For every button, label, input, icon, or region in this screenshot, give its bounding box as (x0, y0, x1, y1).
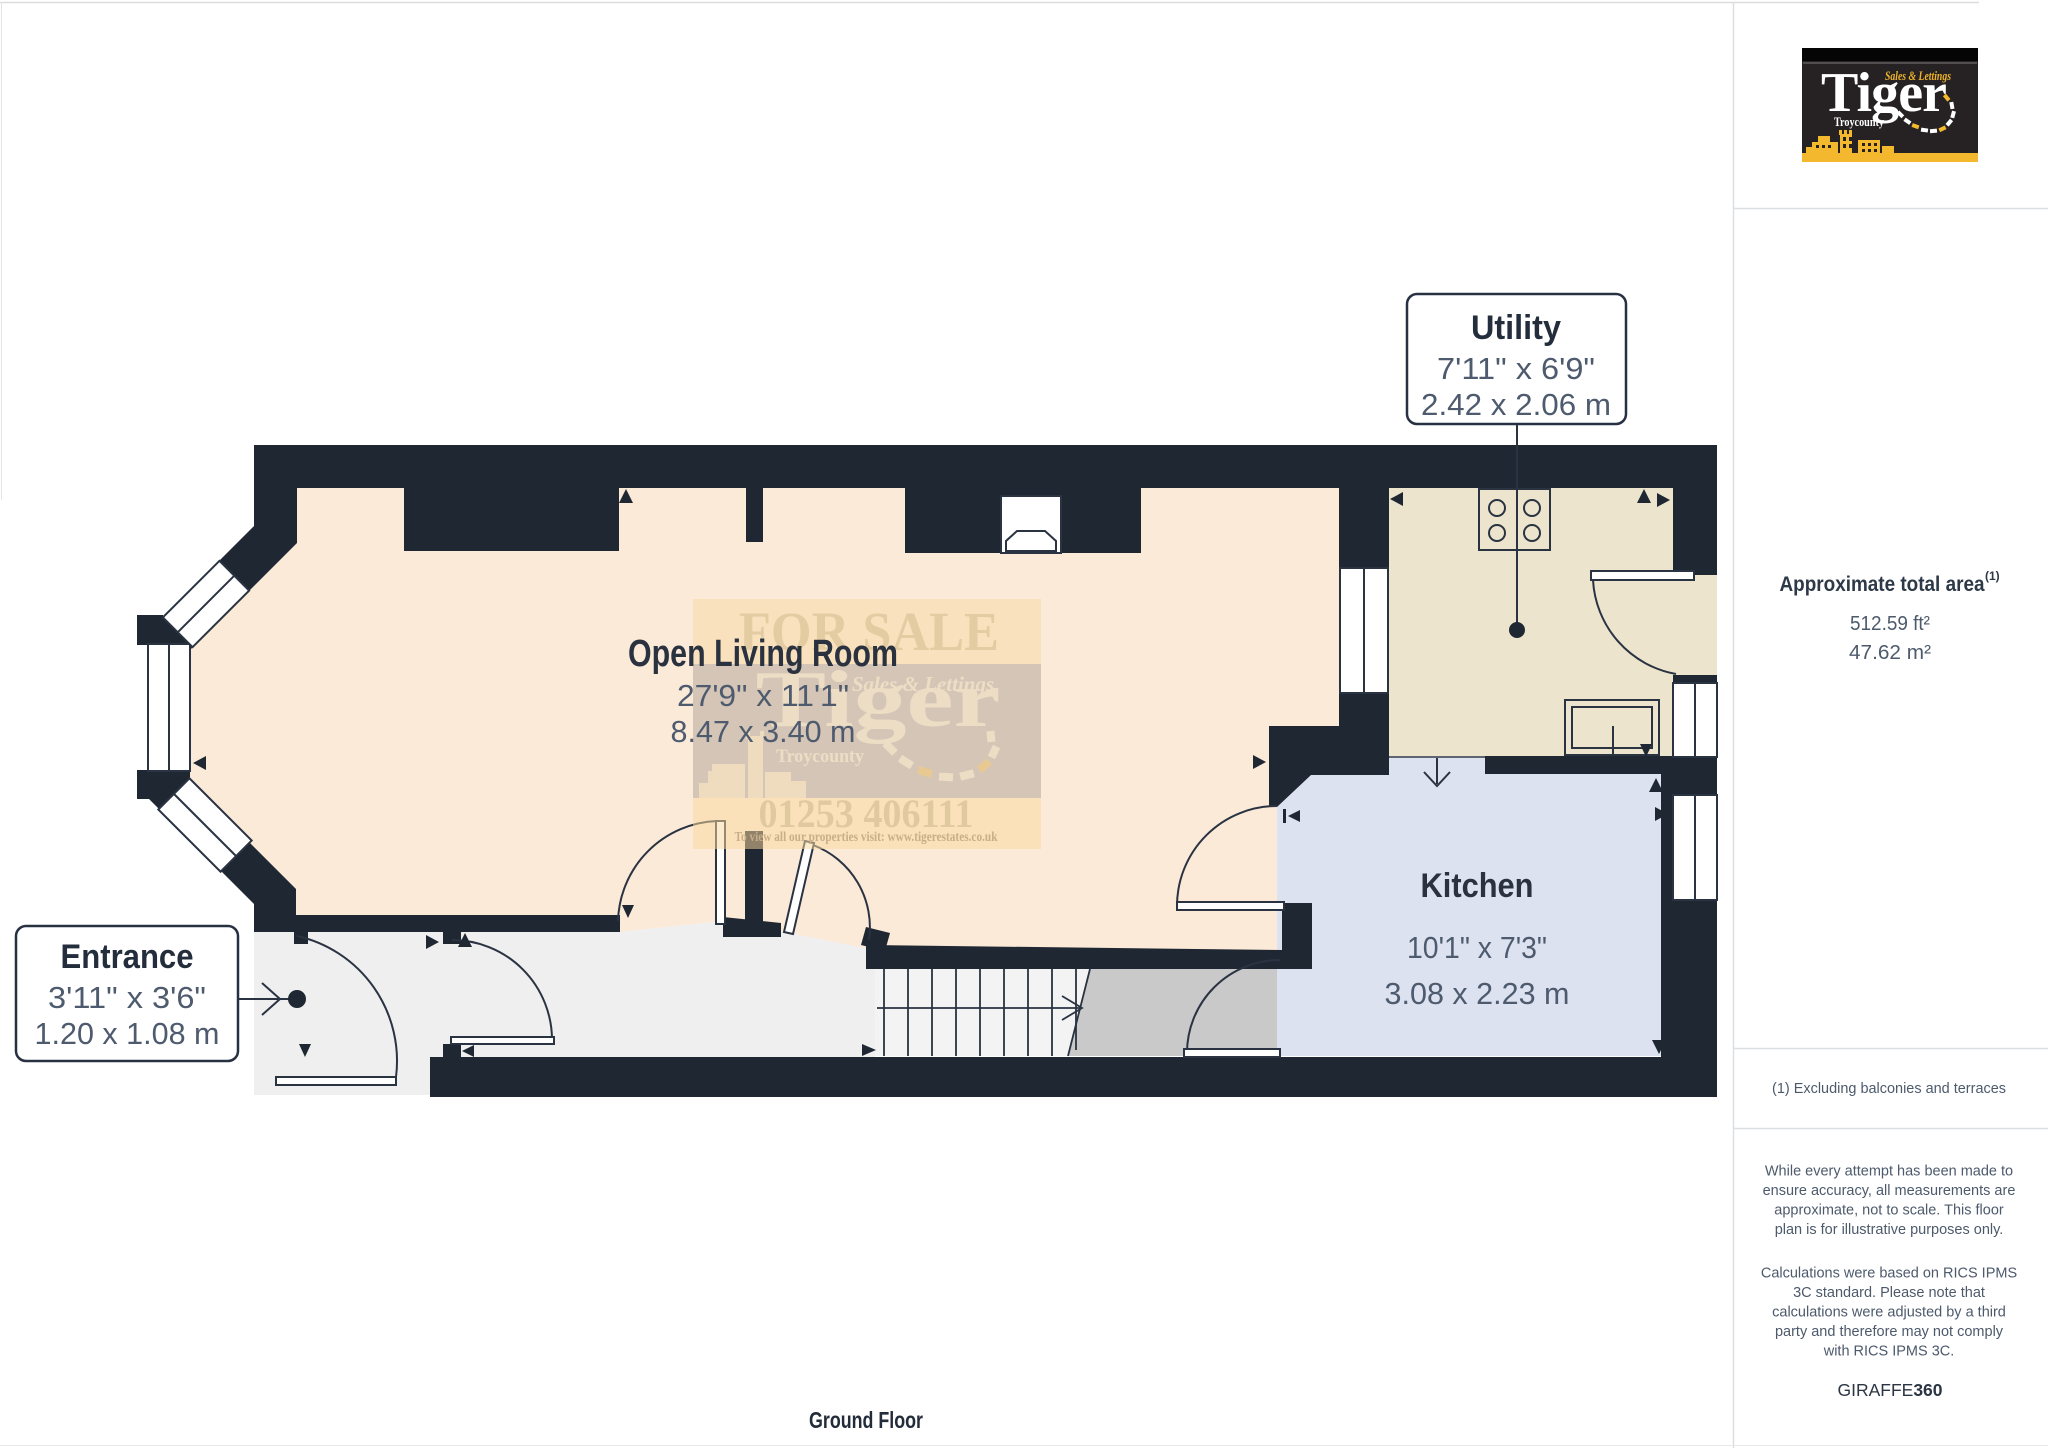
svg-text:with RICS IPMS 3C.: with RICS IPMS 3C. (1823, 1344, 1955, 1360)
svg-text:10'1" x 7'3": 10'1" x 7'3" (1407, 930, 1547, 965)
svg-text:Sales & Lettings: Sales & Lettings (852, 672, 994, 696)
svg-text:(1) Excluding balconies and te: (1) Excluding balconies and terraces (1772, 1081, 2006, 1097)
svg-text:ensure accuracy, all measureme: ensure accuracy, all measurements are (1763, 1183, 2016, 1199)
svg-text:Entrance: Entrance (61, 938, 194, 976)
svg-text:GIRAFFE360: GIRAFFE360 (1837, 1380, 1942, 1400)
svg-text:To view all our properties vis: To view all our properties visit: www.ti… (735, 829, 998, 844)
svg-text:512.59 ft²: 512.59 ft² (1850, 613, 1930, 635)
svg-text:7'11" x 6'9": 7'11" x 6'9" (1437, 351, 1595, 386)
svg-text:party and therefore may not co: party and therefore may not comply (1775, 1324, 2004, 1340)
svg-text:Troycounty: Troycounty (776, 746, 864, 767)
svg-text:3C standard. Please note that: 3C standard. Please note that (1793, 1285, 1985, 1301)
svg-text:3.08 x 2.23 m: 3.08 x 2.23 m (1385, 976, 1570, 1011)
svg-text:3'11" x 3'6": 3'11" x 3'6" (48, 980, 206, 1015)
svg-text:Open Living Room: Open Living Room (628, 633, 898, 675)
svg-text:47.62 m²: 47.62 m² (1849, 642, 1931, 664)
svg-text:plan is for illustrative purpo: plan is for illustrative purposes only. (1775, 1222, 2004, 1238)
svg-text:2.42 x 2.06 m: 2.42 x 2.06 m (1421, 387, 1611, 422)
svg-text:While every attempt has been m: While every attempt has been made to (1765, 1164, 2013, 1180)
svg-text:Ground Floor: Ground Floor (809, 1407, 923, 1433)
svg-text:calculations were adjusted by: calculations were adjusted by a third (1772, 1305, 2006, 1321)
svg-text:(1): (1) (1985, 569, 2000, 583)
svg-text:Approximate total area: Approximate total area (1780, 572, 1986, 596)
svg-text:8.47 x 3.40 m: 8.47 x 3.40 m (671, 714, 856, 749)
svg-text:27'9" x 11'1": 27'9" x 11'1" (677, 678, 849, 713)
svg-text:approximate, not to scale. Thi: approximate, not to scale. This floor (1774, 1203, 2004, 1219)
svg-text:Calculations were based on RIC: Calculations were based on RICS IPMS (1761, 1266, 2017, 1282)
svg-text:Kitchen: Kitchen (1421, 867, 1534, 905)
svg-text:1.20 x 1.08 m: 1.20 x 1.08 m (35, 1016, 220, 1051)
svg-text:Utility: Utility (1471, 309, 1561, 347)
